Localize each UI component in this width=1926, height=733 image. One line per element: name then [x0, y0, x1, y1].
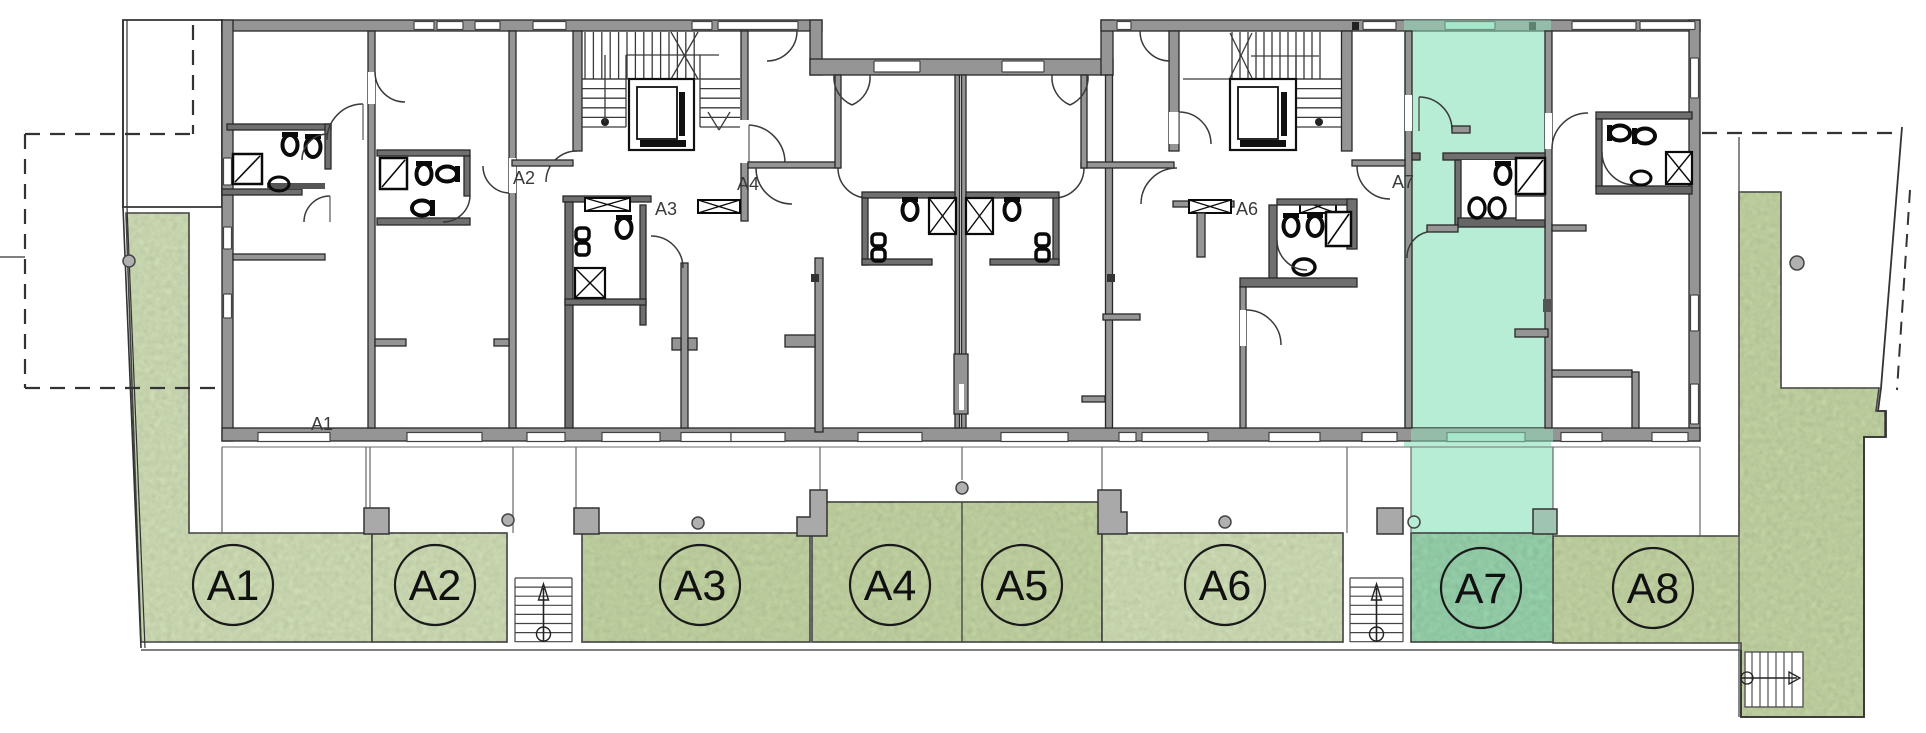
- svg-text:A1: A1: [311, 414, 333, 434]
- svg-text:A4: A4: [737, 174, 759, 194]
- svg-text:A2: A2: [513, 168, 535, 188]
- svg-text:A6: A6: [1236, 199, 1258, 219]
- svg-text:A2: A2: [409, 562, 462, 610]
- svg-text:A7: A7: [1455, 565, 1508, 613]
- svg-text:A3: A3: [674, 562, 727, 610]
- svg-text:A3: A3: [655, 199, 677, 219]
- svg-text:A1: A1: [207, 562, 260, 610]
- svg-text:A6: A6: [1199, 562, 1252, 610]
- svg-text:A4: A4: [864, 562, 917, 610]
- svg-text:A5: A5: [996, 562, 1049, 610]
- svg-text:A7: A7: [1392, 172, 1414, 192]
- svg-text:A8: A8: [1627, 565, 1680, 613]
